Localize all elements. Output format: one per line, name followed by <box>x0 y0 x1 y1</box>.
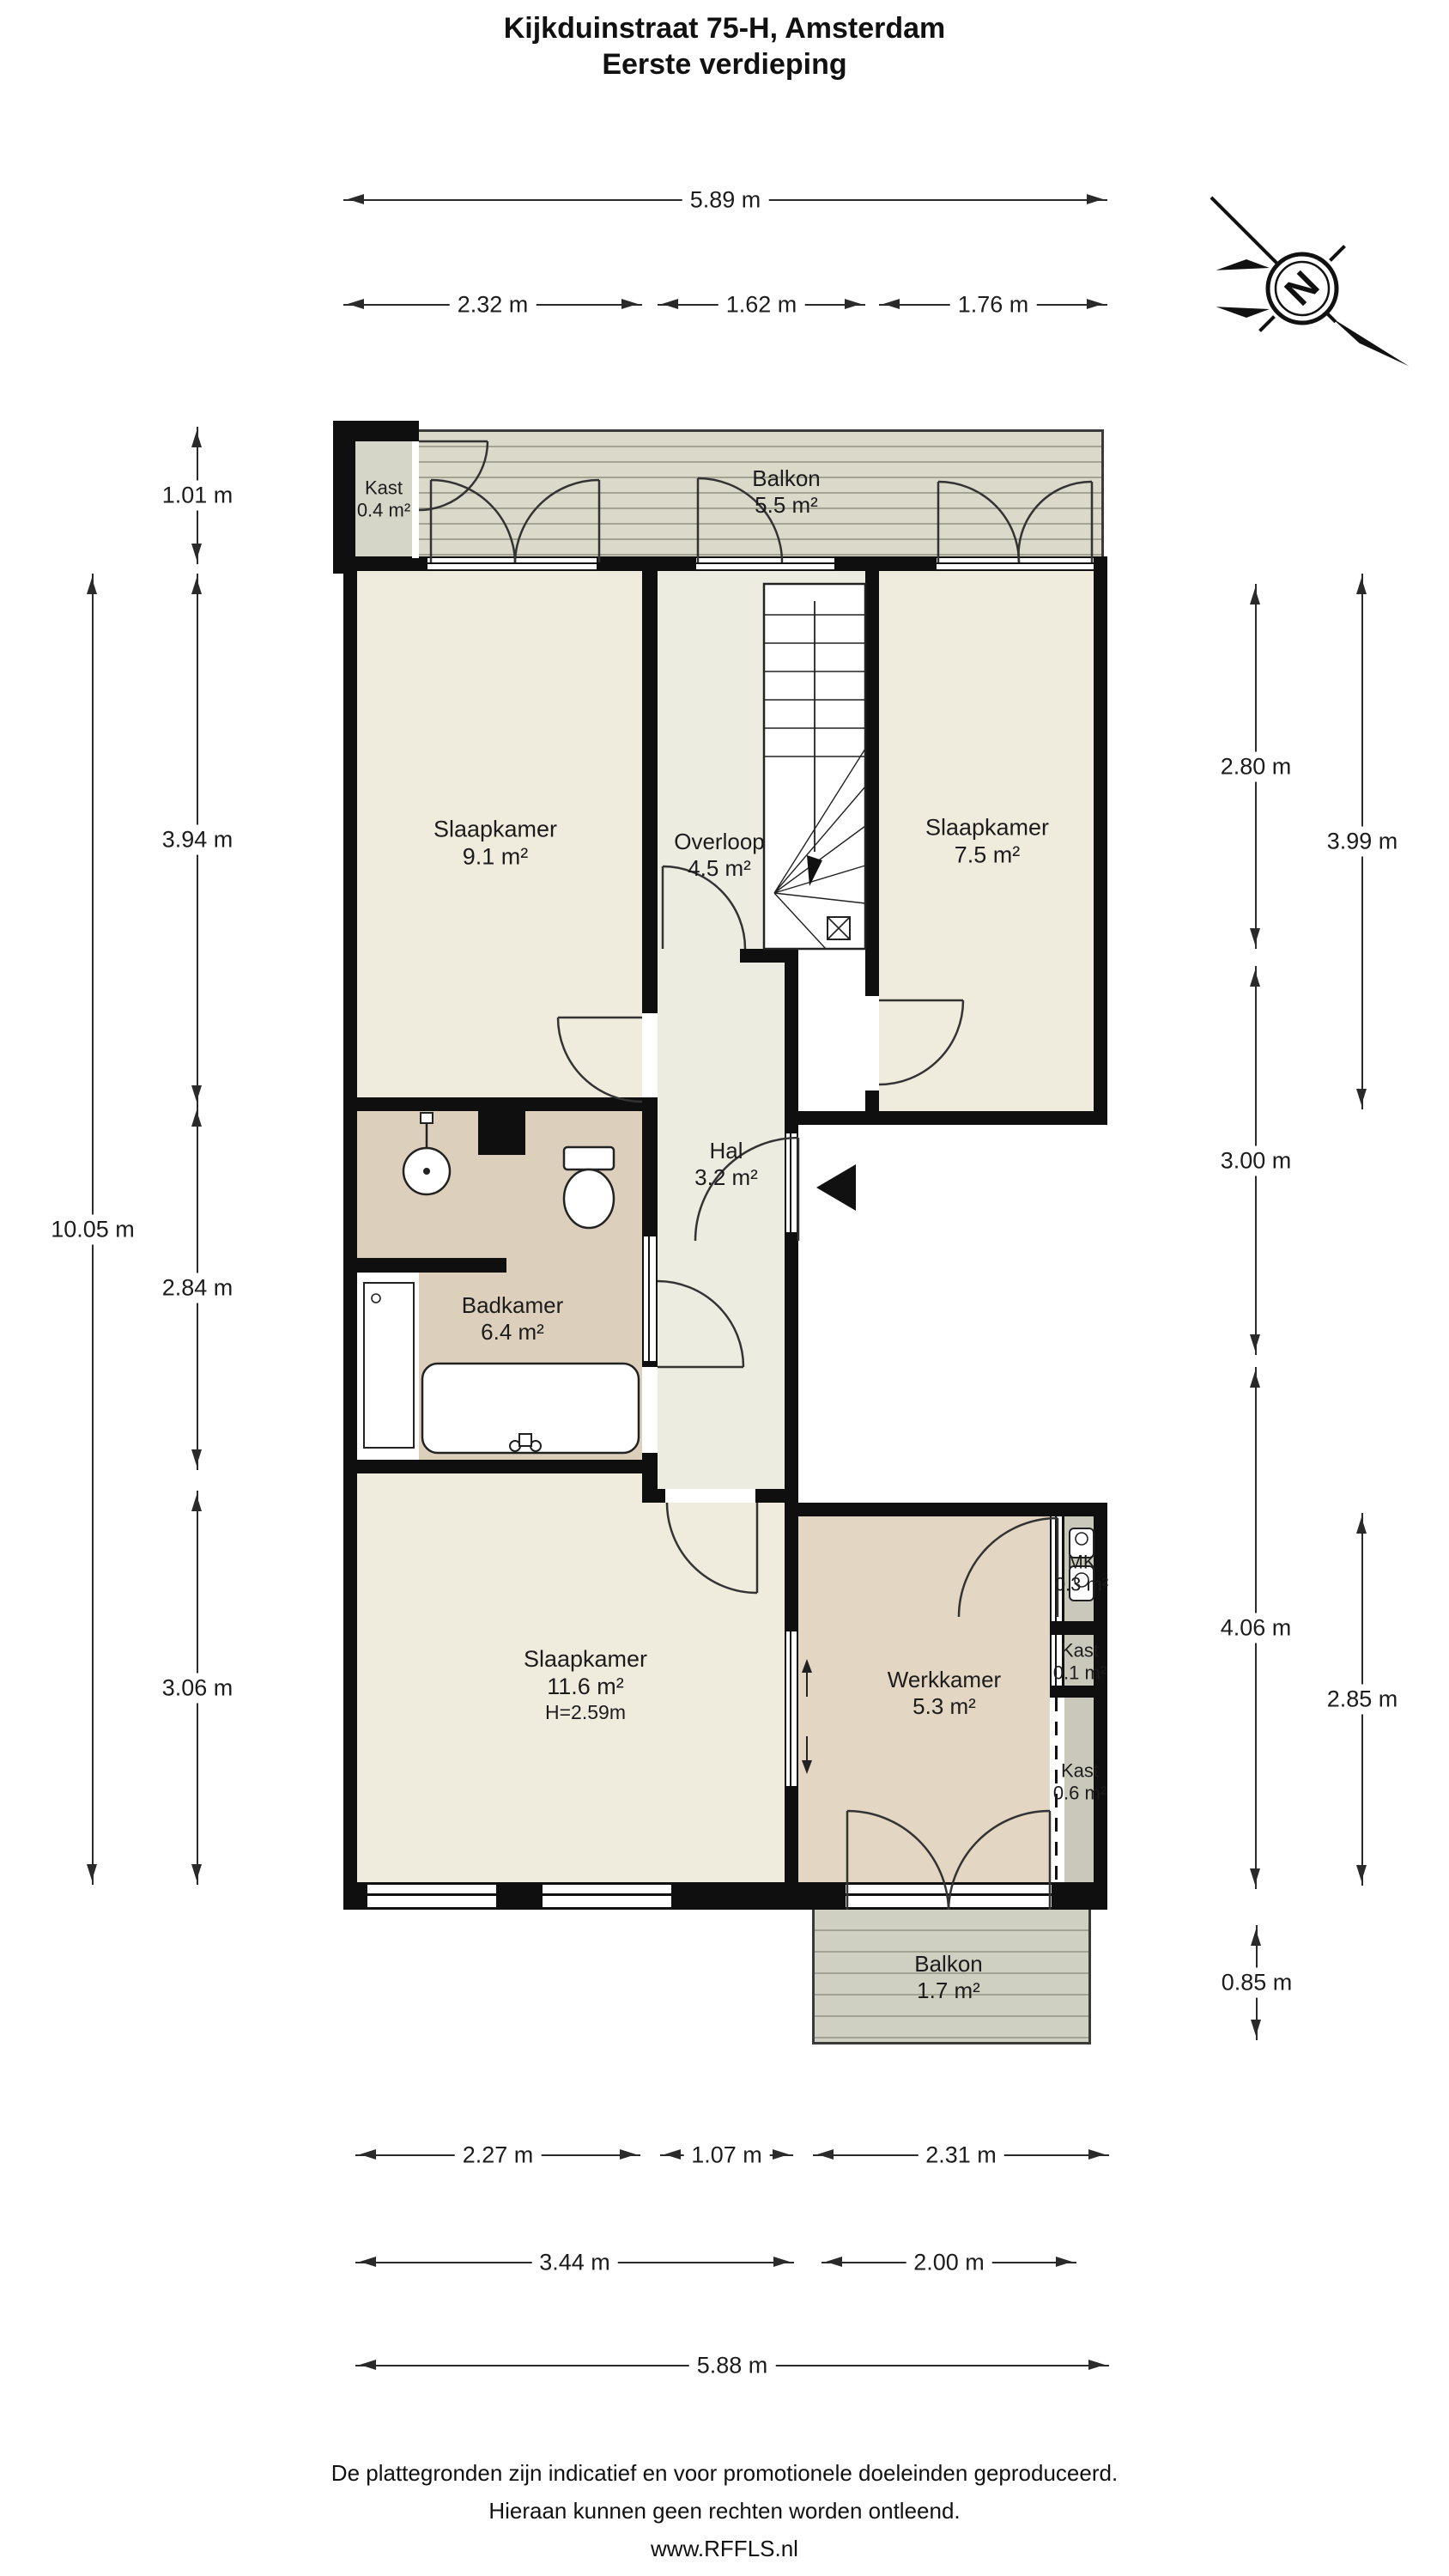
glass-partition <box>642 1236 658 1361</box>
dimension-right-2: 3.00 m <box>1255 966 1257 1355</box>
disclaimer-line-1: De plattegronden zijn indicatief en voor… <box>0 2454 1449 2492</box>
wall <box>671 1882 846 1910</box>
badkamer-niche <box>357 1273 419 1460</box>
wall <box>333 421 419 441</box>
address-line: Kijkduinstraat 75-H, Amsterdam <box>0 10 1449 46</box>
wall <box>343 1460 658 1473</box>
wall <box>597 556 696 571</box>
window <box>696 556 834 571</box>
label-balkon-top: Balkon 5.5 m² <box>752 465 821 519</box>
wall <box>1052 1882 1107 1910</box>
compass-north-icon: N <box>1159 155 1437 433</box>
disclaimer-line-2: Hieraan kunnen geen rechten worden ontle… <box>0 2492 1449 2530</box>
dimension-top-1: 2.32 m <box>343 304 642 306</box>
window <box>427 556 597 571</box>
wall <box>755 1489 798 1503</box>
wall <box>642 1111 658 1236</box>
dimension-right-1: 2.80 m <box>1255 584 1257 949</box>
wall <box>785 1503 798 1631</box>
wall <box>798 1111 1107 1125</box>
label-hal: Hal 3.2 m² <box>694 1138 758 1191</box>
wall <box>785 949 798 1133</box>
wall <box>343 1882 367 1910</box>
wall <box>642 1361 658 1367</box>
wall <box>642 571 658 1013</box>
label-werkkamer: Werkkamer 5.3 m² <box>888 1667 1001 1720</box>
compass-north-letter: N <box>1276 262 1327 313</box>
room-slaapkamer-3-right <box>658 1503 785 1882</box>
label-slaapkamer-2: Slaapkamer 7.5 m² <box>925 814 1049 870</box>
label-mk: MK 0.3 m² <box>1055 1552 1108 1597</box>
label-kast-low: Kast 0.6 m² <box>1053 1760 1106 1806</box>
kast-door-gap <box>412 441 419 558</box>
wall <box>798 1503 1107 1516</box>
entrance-door <box>785 1133 798 1232</box>
label-kast-top: Kast 0.4 m² <box>357 477 410 523</box>
wall <box>740 949 785 963</box>
wall <box>343 1097 658 1111</box>
wall <box>333 421 355 574</box>
dimension-bottom-3: 2.31 m <box>813 2154 1109 2156</box>
floorplan-page: Kijkduinstraat 75-H, Amsterdam Eerste ve… <box>0 0 1449 2576</box>
wall <box>496 1882 543 1910</box>
floor-line: Eerste verdieping <box>0 46 1449 82</box>
dimension-left-3: 2.84 m <box>197 1106 198 1470</box>
label-balkon-bottom: Balkon 1.7 m² <box>914 1951 983 2004</box>
dimension-right-5: 2.85 m <box>1361 1513 1363 1886</box>
balcony-door-threshold <box>846 1882 1052 1910</box>
window <box>543 1882 671 1910</box>
dimension-bottom-overall: 5.88 m <box>355 2365 1109 2366</box>
label-kast-mid: Kast 0.1 m² <box>1053 1640 1106 1686</box>
label-slaapkamer-3: Slaapkamer 11.6 m² H=2.59m <box>524 1645 647 1724</box>
dimension-top-3: 1.76 m <box>879 304 1107 306</box>
wall-exterior-left <box>343 556 357 1910</box>
label-badkamer: Badkamer 6.4 m² <box>462 1292 564 1346</box>
room-hal <box>658 949 785 1489</box>
wall <box>785 1232 798 1503</box>
page-title: Kijkduinstraat 75-H, Amsterdam Eerste ve… <box>0 10 1449 82</box>
room-overloop <box>658 571 865 949</box>
dimension-top-overall: 5.89 m <box>343 199 1107 201</box>
dimension-bottom-5: 2.00 m <box>822 2262 1076 2263</box>
wall <box>658 1489 665 1503</box>
dimension-left-1: 1.01 m <box>197 427 198 564</box>
wall <box>357 1258 506 1273</box>
dimension-top-2: 1.62 m <box>658 304 865 306</box>
dimension-left-4: 3.06 m <box>197 1491 198 1885</box>
disclaimer: De plattegronden zijn indicatief en voor… <box>0 2454 1449 2567</box>
wall <box>785 1786 798 1882</box>
wall <box>865 556 879 996</box>
dimension-right-4: 3.99 m <box>1361 574 1363 1109</box>
window <box>937 556 1094 571</box>
dimension-left-overall: 10.05 m <box>92 574 94 1885</box>
dimension-bottom-2: 1.07 m <box>660 2154 793 2156</box>
dimension-right-3: 4.06 m <box>1255 1367 1257 1889</box>
window <box>367 1882 496 1910</box>
dimension-right-6: 0.85 m <box>1256 1925 1258 2040</box>
entrance-arrow-icon <box>816 1164 856 1211</box>
website-url: www.RFFLS.nl <box>0 2530 1449 2567</box>
interior-window <box>785 1631 798 1786</box>
dimension-bottom-1: 2.27 m <box>355 2154 640 2156</box>
label-slaapkamer-1: Slaapkamer 9.1 m² <box>433 816 557 872</box>
dimension-bottom-4: 3.44 m <box>355 2262 794 2263</box>
wall <box>478 1111 525 1155</box>
wall <box>834 556 937 571</box>
dimension-left-2: 3.94 m <box>197 574 198 1106</box>
label-overloop: Overloop 4.5 m² <box>674 829 765 882</box>
wall-exterior-right-upper <box>1094 556 1107 1125</box>
